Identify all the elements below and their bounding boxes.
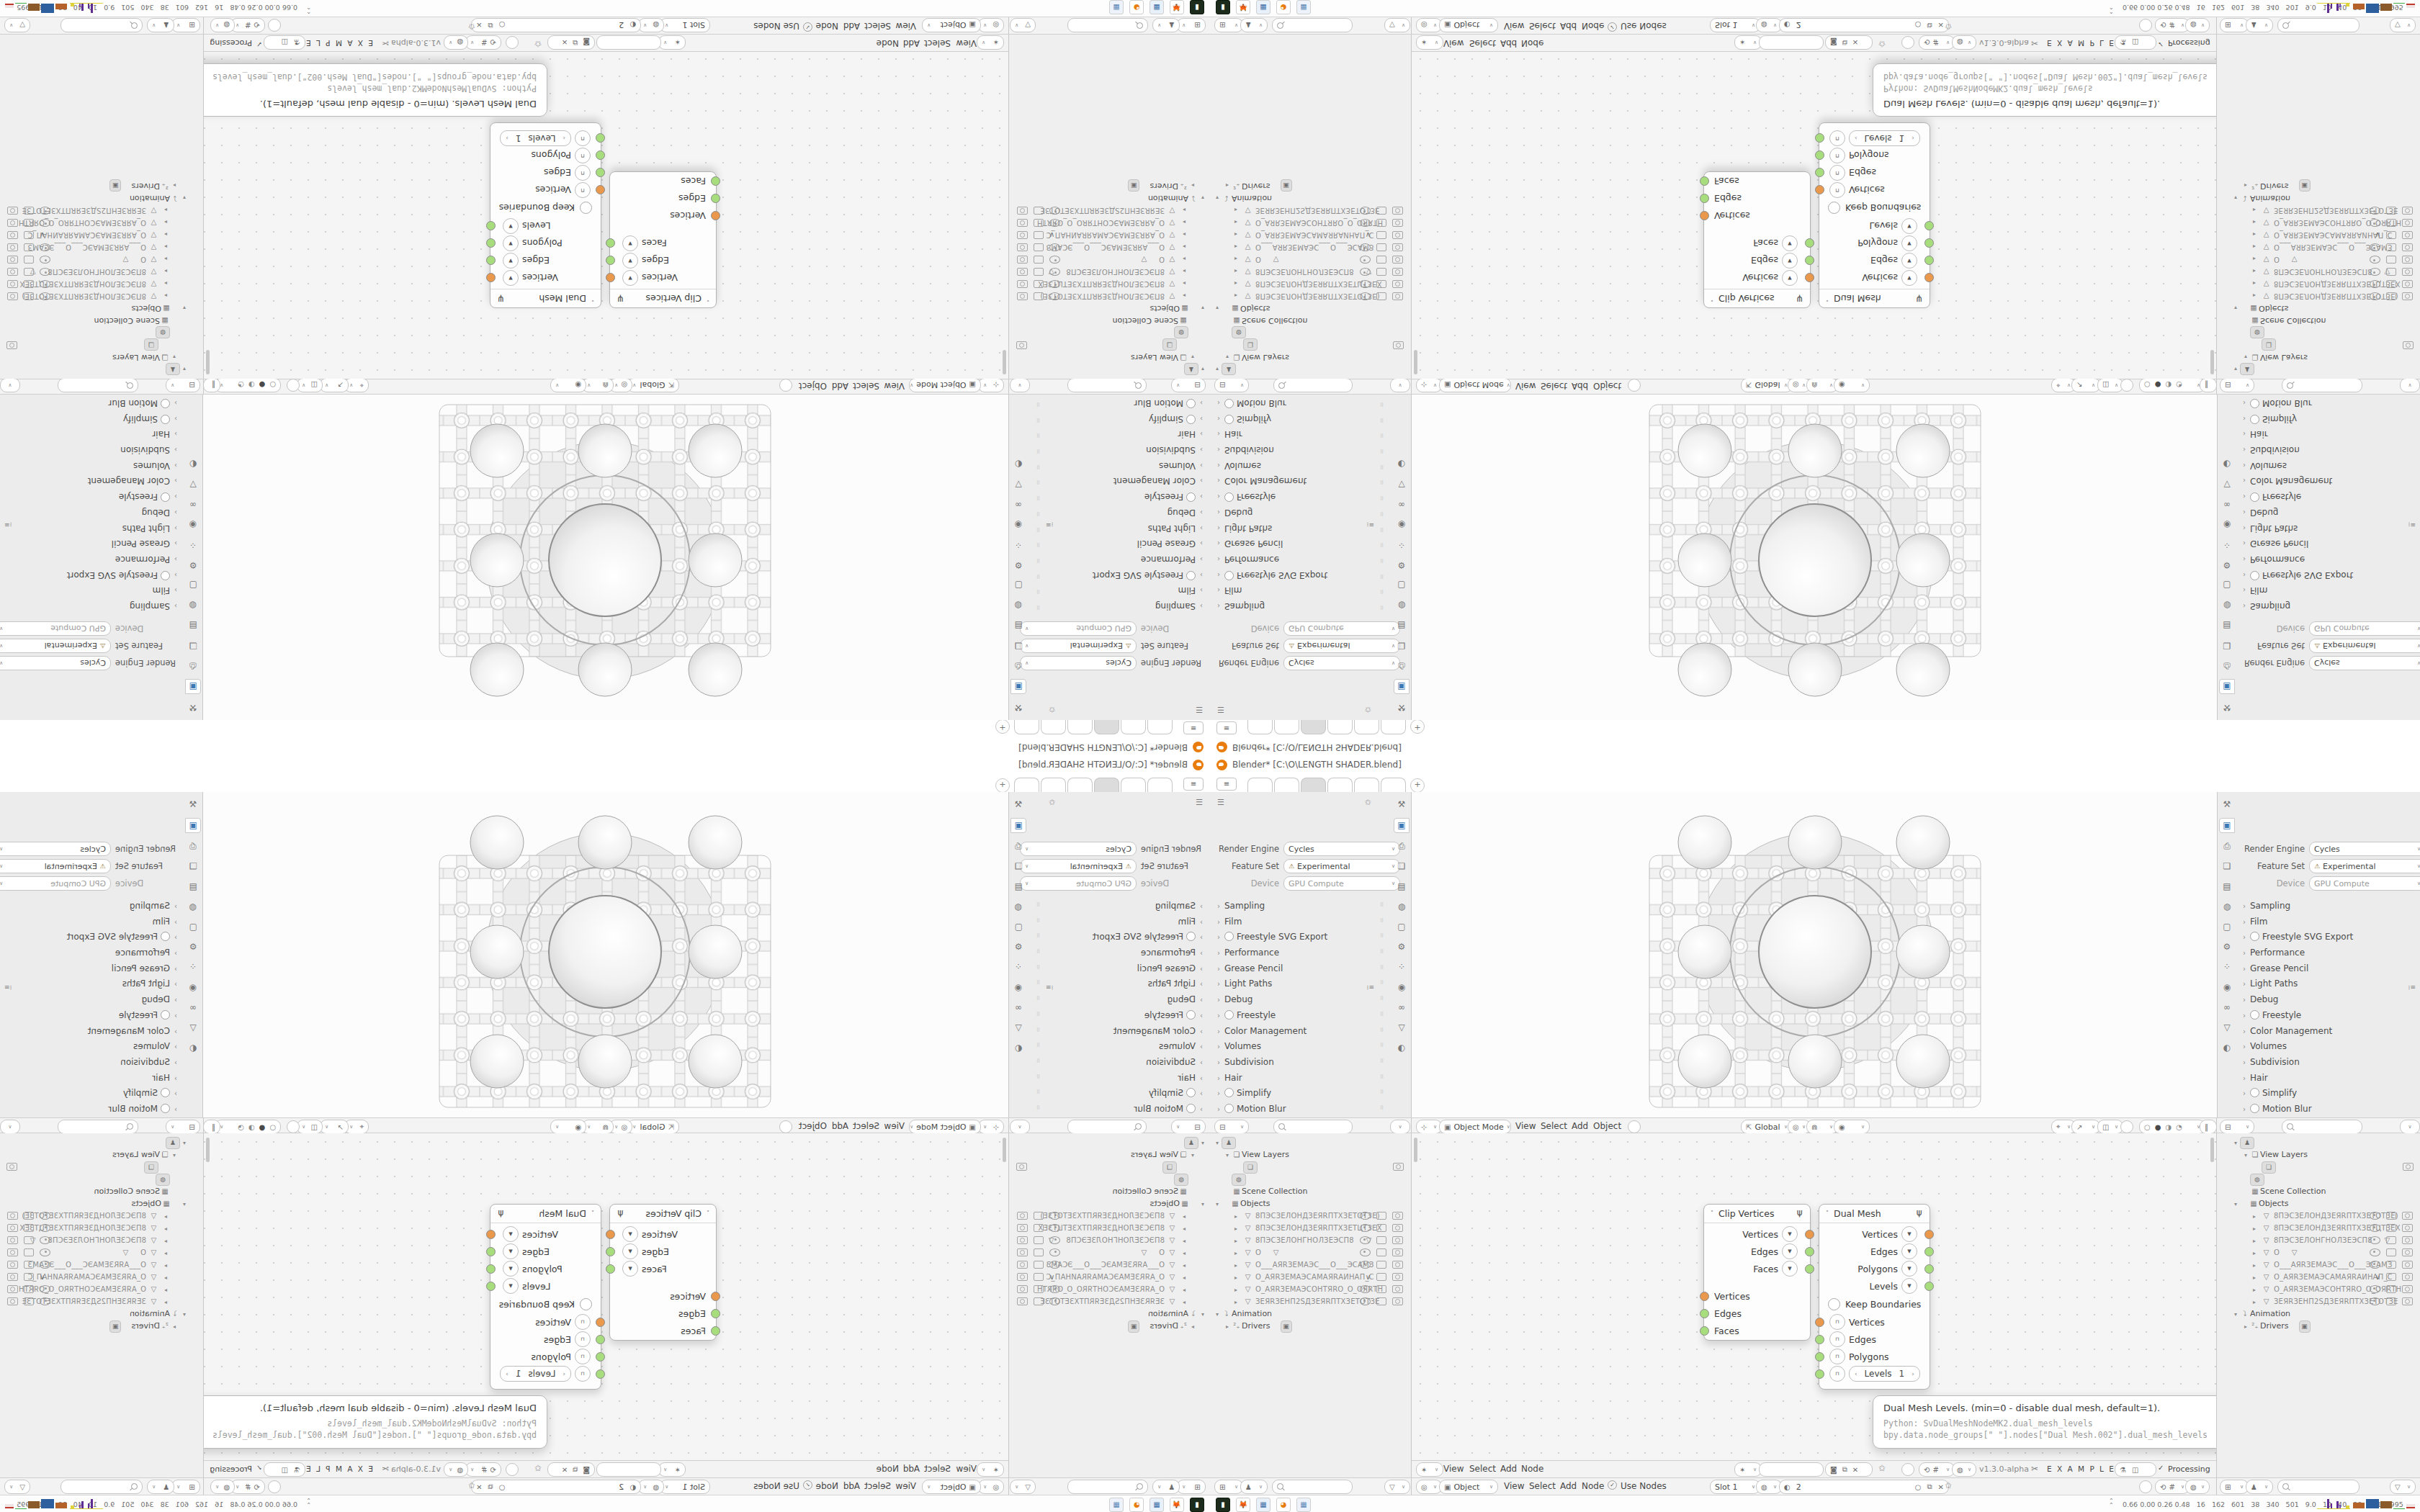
modifiers-icon[interactable]: ⚙ [1011, 940, 1026, 954]
disable-viewport-icon[interactable] [1034, 1273, 1044, 1281]
funnel-filter-button[interactable]: ▽∨ [2390, 1480, 2416, 1494]
property-section-row[interactable]: ›Film⁝≡⠿ [2236, 582, 2420, 598]
filter-owner-button[interactable]: ♟∨ [1152, 18, 1180, 32]
output-socket[interactable] [486, 1247, 496, 1256]
hide-eye-icon[interactable] [1049, 1248, 1060, 1256]
hide-eye-icon[interactable] [2370, 1224, 2380, 1232]
physics-icon[interactable]: ◉ [1394, 518, 1409, 531]
property-section-row[interactable]: ›Subdivision⁝≡⠿ [2236, 441, 2420, 457]
outliner-object-row[interactable]: ▸ ▽ 8ПЭСЗЕЛОНГНОЛЗЕЭСП8 ▽ ∨ [1213, 266, 1408, 278]
shading-mode-group[interactable]: ○ ● ◑ ◔ ∨ [2139, 378, 2205, 392]
firefox-icon[interactable]: 🦊 [1170, 0, 1184, 14]
property-section-row[interactable]: ›Film⁝≡⠿ [1027, 914, 1210, 930]
disable-viewport-icon[interactable] [24, 1297, 34, 1305]
outliner-object-row[interactable]: ▸ ▽ 8ПЭСЗЕЛОНГНОЛЗЕЭСП8 ▽ ∨ [2, 1234, 189, 1246]
outliner-object-row[interactable]: ▸ ▽ 8ПЭСЗЕЛОНГНОЛЗЕЭСП8 ▽ ∨ [2231, 1234, 2418, 1246]
node-output-socket-row[interactable]: Polygons▼ [490, 235, 601, 252]
workspace-tab[interactable] [1327, 778, 1353, 793]
disable-render-icon[interactable] [1017, 231, 1028, 239]
drag-grip-icon[interactable]: ⠿ [1380, 540, 1389, 546]
physics-icon[interactable]: ◉ [1011, 518, 1026, 531]
view-layer-icon[interactable]: ❏ [2220, 639, 2234, 652]
node-header[interactable]: ˅Dual Mesh⋔ [490, 1205, 601, 1223]
disable-viewport-icon[interactable] [1034, 292, 1044, 300]
output-socket[interactable] [1924, 1264, 1934, 1274]
material-slot-select[interactable]: Slot 1∨ [660, 1480, 710, 1494]
outliner-object-row[interactable]: ▸ ▽ 8ПЭСЗЕЛОНДЗЕЯRПТХЗЕТОТЗЕ) ▽ ∨ [1012, 290, 1207, 302]
menu-select[interactable]: Select [864, 1481, 891, 1491]
property-section-row[interactable]: ›Simplify⁝≡⠿ [2236, 410, 2420, 426]
property-section-row[interactable]: ›Hair⁝≡⠿ [0, 426, 184, 442]
outliner-object-row[interactable]: ▸ ▽ 8ПЭСЗЕЛОНДЗЕЯRПТХЗЕТЦТЗЕХ ▽ ∨ [2231, 1222, 2418, 1234]
menu-add[interactable]: Add [903, 38, 920, 48]
outliner-object-row[interactable]: ▸ ▽ O_АЯRЗЕМАЭСОНТЯRO_O_ОЯRТН ▽ ∨ [1213, 1283, 1408, 1295]
disable-render-icon[interactable] [7, 219, 18, 227]
menu-view[interactable]: View [896, 21, 916, 31]
hide-eye-icon[interactable] [2370, 280, 2380, 288]
section-toggle[interactable] [1224, 571, 1234, 580]
disable-viewport-icon[interactable] [24, 280, 34, 288]
outliner-object-row[interactable]: ▸ ▽ 8ПЭСЗЕЛОНДЗЕЯRПТХЗЕТЦТЗЕХ ▽ ∨ [1012, 1222, 1207, 1234]
property-section-row[interactable]: ›Debug⁝≡⠿ [1027, 504, 1210, 520]
hide-eye-icon[interactable] [1049, 1261, 1060, 1269]
render-icon[interactable]: ▣ [1010, 818, 1026, 833]
node-header[interactable]: ˅Dual Mesh⋔ [1819, 1205, 1930, 1223]
node-output-socket-row[interactable]: Levels▼ [490, 217, 601, 235]
filter-owner-button[interactable]: ♟∨ [2246, 18, 2273, 32]
outliner-display-mode-button[interactable]: ⊞∨ [171, 18, 200, 32]
node-input-socket-row[interactable]: ⊓Edges [1819, 164, 1930, 181]
section-toggle[interactable] [1224, 492, 1234, 502]
disable-render-icon[interactable] [2402, 207, 2413, 215]
tree-name-input[interactable] [1759, 1462, 1824, 1477]
node-output-socket-row[interactable]: Vertices▼ [1819, 269, 1930, 287]
dna-icon[interactable]: ✂ [2031, 1464, 2038, 1474]
menu-hamburger-icon[interactable]: ≡ [1183, 721, 1204, 734]
add-workspace-button[interactable]: + [995, 778, 1010, 793]
output-socket[interactable] [486, 1282, 496, 1291]
menu-select[interactable]: Select [924, 1464, 951, 1474]
solid-shading-icon[interactable]: ● [259, 382, 266, 390]
property-section-row[interactable]: ›Performance⁝≡⠿ [2236, 551, 2420, 567]
socket-menu-button[interactable]: ▼ [1901, 218, 1917, 234]
particles-icon[interactable]: ⁘ [1011, 538, 1026, 552]
view-layers-row[interactable]: ▾❏View Layers [1213, 351, 1408, 364]
wireframe-shading-icon[interactable]: ○ [269, 382, 276, 390]
terminal-icon[interactable]: ▮ [1190, 1498, 1204, 1512]
section-toggle[interactable] [1224, 932, 1234, 941]
node-output-socket-row[interactable]: Vertices▼ [610, 1225, 716, 1243]
render-engine-select[interactable]: Cycles∨ [2309, 842, 2420, 856]
disable-render-icon[interactable] [1392, 231, 1403, 239]
output-icon[interactable]: ⎙ [1394, 659, 1409, 672]
collapse-vee-icon[interactable]: ∨ [40, 229, 45, 241]
node-tree-type-button[interactable]: ✶∨ [977, 1462, 1004, 1477]
workspace-tab[interactable] [1274, 778, 1299, 793]
disable-viewport-icon[interactable] [1376, 231, 1386, 239]
collapse-icon[interactable]: ˅ [1711, 295, 1713, 302]
dna-icon[interactable]: ✂ [382, 38, 389, 48]
plug-button[interactable]: ⊓ [1829, 182, 1845, 198]
hide-eye-icon[interactable] [1360, 243, 1371, 251]
property-section-row[interactable]: ›Debug⁝≡⠿ [0, 504, 184, 520]
scene-icon[interactable]: ▤ [1394, 880, 1409, 894]
output-socket[interactable] [1805, 273, 1814, 282]
shield-icon[interactable]: ◙ [1830, 39, 1837, 47]
menu-select[interactable]: Select [1541, 381, 1567, 391]
world-icon[interactable]: ◍ [156, 326, 170, 338]
disable-viewport-icon[interactable] [2386, 243, 2396, 251]
physics-icon[interactable]: ◉ [186, 518, 200, 531]
examples-menu[interactable]: E X A M P L E S [2047, 39, 2125, 48]
tool-icon[interactable]: ⚒ [186, 701, 200, 714]
pin-icon[interactable]: ✩ [468, 1480, 475, 1490]
rendered-shading-icon[interactable]: ◔ [2176, 1123, 2182, 1131]
disable-viewport-icon[interactable] [1376, 256, 1386, 264]
node-dual-mesh[interactable]: ˅Dual Mesh⋔ Vertices▼ Edges▼ Polygons▼ L… [1819, 122, 1930, 308]
node-header[interactable]: ˅Clip Vertices⋔ [1704, 289, 1810, 307]
section-toggle[interactable] [1186, 399, 1196, 408]
disable-viewport-icon[interactable] [24, 219, 34, 227]
property-section-row[interactable]: ›Debug⁝≡⠿ [1210, 504, 1393, 520]
outliner-object-row[interactable]: ▸ ▽ O_АЯRЗЕМАЭСАМАЯRАИНАП_С ▽ ∨ [1012, 229, 1207, 241]
property-section-row[interactable]: ›Volumes⁝≡⠿ [2236, 457, 2420, 473]
drag-grip-icon[interactable]: ⠿ [1031, 525, 1040, 531]
object-icon[interactable]: ▢ [1394, 920, 1409, 934]
copies-icon[interactable]: ⧉ [1842, 1465, 1847, 1474]
property-section-row[interactable]: ›Color Management⁝≡⠿ [1027, 473, 1210, 489]
node-input-socket-row[interactable]: Edges [610, 1305, 716, 1322]
outliner-search-input[interactable] [58, 378, 138, 392]
node-clip-vertices[interactable]: ˅Clip Vertices⋔ Vertices▼ Edges▼ Faces▼ [609, 171, 717, 308]
drag-grip-icon[interactable]: ⠿ [1380, 493, 1389, 499]
property-section-row[interactable]: ›Simplify⁝≡⠿ [1210, 410, 1393, 426]
disable-render-icon[interactable] [1392, 1248, 1403, 1256]
snap-dropdown[interactable]: ⟲#∨ [230, 1480, 265, 1494]
hide-eye-icon[interactable] [1360, 207, 1371, 215]
hide-eye-icon[interactable] [1049, 207, 1060, 215]
workspace-tab[interactable] [1247, 778, 1273, 793]
shader-type-select[interactable]: ▣Object∨ [922, 1480, 981, 1494]
object-icon[interactable]: ▢ [1394, 578, 1409, 592]
output-socket[interactable] [1805, 256, 1814, 265]
plug-button[interactable]: ⊓ [575, 1366, 591, 1382]
annotate-toggle[interactable] [1628, 1120, 1641, 1133]
disable-viewport-icon[interactable] [2386, 1224, 2396, 1232]
property-section-row[interactable]: ›Simplify⁝≡⠿ [1210, 1086, 1393, 1102]
disable-viewport-icon[interactable] [24, 268, 34, 276]
material-icon-dropdown[interactable]: ◍∨ [1756, 1480, 1782, 1494]
tool-icon[interactable]: ⚒ [1394, 798, 1409, 811]
funnel-filter-button[interactable]: ▽∨ [1010, 18, 1036, 32]
drag-grip-icon[interactable]: ⠿ [1031, 950, 1040, 956]
outliner-object-row[interactable]: ▸ ▽ 8ПЭСЗЕЛОНГНОЛЗЕЭСП8 ▽ ∨ [1012, 1234, 1207, 1246]
sv-extra-group[interactable]: ⚗◫ [264, 35, 305, 50]
tool-icon[interactable]: ⚒ [1394, 701, 1409, 714]
drag-grip-icon[interactable]: ⠿ [1031, 935, 1040, 940]
menu-select[interactable]: Select [924, 38, 951, 48]
drag-grip-icon[interactable]: ⠿ [1380, 904, 1389, 909]
property-section-row[interactable]: ›Performance⁝≡⠿ [1027, 945, 1210, 961]
scene-icon[interactable]: ▤ [186, 880, 200, 894]
hide-eye-icon[interactable] [2370, 243, 2380, 251]
menu-hamburger-icon[interactable]: ≡ [1216, 721, 1237, 734]
feature-set-select[interactable]: ⚠Experimental∨ [1020, 639, 1137, 653]
input-socket[interactable] [596, 1318, 605, 1327]
drag-grip-icon[interactable]: ⠿ [1031, 1076, 1040, 1081]
disable-render-icon[interactable] [7, 1285, 18, 1293]
tree-protect-group[interactable]: ◙⧉✕ [1825, 35, 1873, 50]
collapse-icon[interactable]: ˅ [1826, 1210, 1829, 1217]
property-section-row[interactable]: ›Volumes⁝≡⠿ [1027, 457, 1210, 473]
disable-viewport-icon[interactable] [1376, 219, 1386, 227]
property-section-row[interactable]: ›Color Management⁝≡⠿ [2236, 473, 2420, 489]
workspace-tab[interactable] [1381, 778, 1406, 793]
constraints-icon[interactable]: ∞ [1011, 498, 1026, 511]
input-socket[interactable] [1815, 150, 1824, 160]
animation-row[interactable]: ▾⤵Animation [1213, 192, 1408, 204]
world-icon[interactable]: ◍ [1232, 1174, 1246, 1186]
disable-viewport-icon[interactable] [24, 1224, 34, 1232]
menu-select[interactable]: Select [1541, 1121, 1567, 1131]
hide-eye-icon[interactable] [1360, 256, 1371, 264]
xray-toggle[interactable]: ◫∨ [297, 1120, 323, 1134]
drag-grip-icon[interactable]: ⠿ [1380, 478, 1389, 484]
node-tree-icon-button[interactable]: ✶∨ [658, 1462, 686, 1477]
keep-boundaries-row[interactable]: Keep Boundaries [490, 1295, 601, 1313]
shader-type-select[interactable]: ▣Object∨ [1439, 1480, 1498, 1494]
disable-viewport-icon[interactable] [1376, 1212, 1386, 1220]
disable-render-icon[interactable] [2402, 1285, 2413, 1293]
funnel-filter-button[interactable]: ▽∨ [4, 1480, 30, 1494]
feature-set-select[interactable]: ⚠Experimental∨ [1020, 859, 1137, 873]
outliner-object-row[interactable]: ▸ ▽ 8ПЭСЗЕЛОНДЗЕЯRПТХЗЕТЦТЗЕХ ▽ ∨ [2, 278, 189, 290]
property-section-row[interactable]: ›Grease Pencil⁝≡⠿ [0, 961, 184, 977]
object-icon[interactable]: ▢ [186, 920, 200, 934]
workspace-tab-active[interactable] [1301, 778, 1326, 793]
property-section-row[interactable]: ›Freestyle⁝≡⠿ [1210, 489, 1393, 505]
viewport-editor-type-button[interactable]: ⊹∨ [978, 378, 1004, 392]
hide-eye-icon[interactable] [40, 256, 50, 264]
world-row[interactable]: ◍ [2, 1173, 189, 1185]
section-toggle[interactable] [2250, 1010, 2259, 1020]
proportional-edit-dropdown[interactable]: ◉∨ [550, 378, 586, 392]
pin-icon[interactable]: ✩ [1945, 22, 1952, 32]
render-engine-select[interactable]: Cycles∨ [2309, 656, 2420, 670]
plug-button[interactable]: ⊓ [575, 165, 591, 181]
scene-collection-row[interactable]: ▦Scene Collection [1213, 1185, 1408, 1197]
calculator2-icon[interactable]: ▦ [1109, 0, 1124, 14]
property-section-row[interactable]: ›Color Management⁝≡⠿ [1210, 1024, 1393, 1040]
menu-add[interactable]: Add [1560, 21, 1577, 31]
property-section-row[interactable]: ›Hair⁝≡⠿ [1210, 426, 1393, 442]
menu-node[interactable]: Node [1521, 1464, 1543, 1474]
overlay-dropdown[interactable]: ◍∨ [444, 1462, 468, 1477]
node-tree-icon-button[interactable]: ✶∨ [1734, 1462, 1762, 1477]
orientation-select[interactable]: ⇱Global∨ [1741, 1120, 1793, 1134]
disable-render-icon[interactable] [1392, 1236, 1403, 1244]
drivers-row[interactable]: ▸²₊Drivers▣ [2, 1320, 189, 1332]
unlink-icon[interactable]: ✕ [562, 1466, 568, 1474]
outliner-object-row[interactable]: ▸ ▽ O___АЯRЗЕМАЭС___O___ЭСАМЗ ▽ ∨ [2231, 241, 2418, 253]
outliner-type-button[interactable]: ⊟∨ [166, 1120, 200, 1134]
drag-grip-icon[interactable]: ⠿ [1031, 400, 1040, 405]
disable-viewport-icon[interactable] [24, 1236, 34, 1244]
drag-grip-icon[interactable]: ⠿ [1031, 1060, 1040, 1066]
drag-grip-icon[interactable]: ⠿ [1031, 981, 1040, 987]
hide-eye-icon[interactable] [40, 219, 50, 227]
outliner-object-row[interactable]: ▸ ▽ ЗЕЯRЗЕНП2SДЗЕЯRПТХЗЕТОТЗЕ ▽ ∨ [1213, 1295, 1408, 1308]
outliner-search-input[interactable] [1273, 378, 1353, 392]
camera-icon[interactable] [1016, 341, 1027, 349]
workspace-tab[interactable] [1014, 778, 1039, 793]
disable-render-icon[interactable] [2402, 280, 2413, 288]
feature-set-select[interactable]: ⚠Experimental∨ [0, 639, 111, 653]
calculator2-icon[interactable]: ▦ [1109, 1498, 1124, 1512]
disable-render-icon[interactable] [1017, 280, 1028, 288]
node-input-socket-row[interactable]: Vertices [610, 207, 716, 225]
outliner-search-input[interactable] [58, 1120, 138, 1134]
property-section-row[interactable]: ›Light Paths⁝≡⠿ [0, 520, 184, 536]
node-output-socket-row[interactable]: Polygons▼ [1819, 1260, 1930, 1277]
workspace-tab[interactable] [1381, 719, 1406, 734]
hide-eye-icon[interactable] [1360, 219, 1371, 227]
menu-node[interactable]: Node [1582, 21, 1604, 31]
outliner-object-row[interactable]: ▸ ▽ O_АЯRЗЕМАЭСАМАЯRАИНАП_С ▽ ∨ [1012, 1271, 1207, 1283]
pin-icon[interactable]: ✩ [1878, 1463, 1886, 1473]
property-section-row[interactable]: ›Freestyle⁝≡⠿ [2236, 1008, 2420, 1024]
flask-icon[interactable]: ⚗ [2120, 39, 2126, 47]
physics-icon[interactable]: ◉ [2220, 518, 2234, 531]
hide-eye-icon[interactable] [2370, 1261, 2380, 1269]
node-dual-mesh[interactable]: ˅Dual Mesh⋔ Vertices▼ Edges▼ Polygons▼ L… [1819, 1204, 1930, 1390]
blend-mode-icon[interactable]: ♟ [166, 363, 180, 375]
menu-select[interactable]: Select [1529, 1481, 1556, 1491]
disable-render-icon[interactable] [2402, 219, 2413, 227]
input-socket[interactable] [1815, 133, 1824, 143]
drag-grip-icon[interactable]: ⠿ [1380, 935, 1389, 940]
outliner-object-row[interactable]: ▸ ▽ ЗЕЯRЗЕНП2SДЗЕЯRПТХЗЕТОТЗЕ ▽ ∨ [2, 1295, 189, 1308]
disable-render-icon[interactable] [1017, 1261, 1028, 1269]
hide-eye-icon[interactable] [1360, 1236, 1371, 1244]
pause-button[interactable]: ‖ [2200, 1120, 2217, 1134]
hide-eye-icon[interactable] [1049, 1224, 1060, 1232]
property-section-row[interactable]: ›Freestyle SVG Export⁝≡⠿ [0, 930, 184, 945]
pin-icon[interactable]: ✩ [1945, 1480, 1952, 1490]
node-header[interactable]: ˅Dual Mesh⋔ [1819, 289, 1930, 307]
modifiers-icon[interactable]: ⚙ [2220, 558, 2234, 572]
view-layer-item-row[interactable]: ❏ [2, 1161, 189, 1173]
property-section-row[interactable]: ›Volumes⁝≡⠿ [2236, 1039, 2420, 1055]
disable-render-icon[interactable] [1017, 268, 1028, 276]
pin-icon[interactable]: ✩ [1049, 798, 1055, 807]
output-socket[interactable] [606, 256, 615, 265]
property-section-row[interactable]: ›Freestyle⁝≡⠿ [2236, 489, 2420, 505]
menu-add[interactable]: Add [1500, 38, 1517, 48]
node-input-socket-row[interactable]: ⊓Edges [490, 164, 601, 181]
drag-grip-icon[interactable]: ⠿ [1380, 1029, 1389, 1035]
blend-mode-icon[interactable]: ♟ [1222, 1137, 1236, 1149]
shading-extra-toggle[interactable] [2120, 1120, 2133, 1133]
world-icon[interactable]: ◍ [1394, 900, 1409, 914]
unlink-icon[interactable]: ✕ [1938, 1483, 1944, 1491]
plug-button[interactable]: ⊓ [575, 1314, 591, 1330]
hide-eye-icon[interactable] [1360, 1297, 1371, 1305]
world-icon[interactable]: ◍ [2250, 1174, 2264, 1186]
section-toggle[interactable] [1186, 571, 1196, 580]
wireframe-shading-icon[interactable]: ○ [2144, 1123, 2151, 1131]
hide-eye-icon[interactable] [1049, 219, 1060, 227]
hide-eye-icon[interactable] [1360, 1248, 1371, 1256]
copies-icon[interactable]: ⧉ [573, 38, 578, 47]
hide-eye-icon[interactable] [1360, 1212, 1371, 1220]
view-layer-icon[interactable]: ❏ [144, 338, 158, 351]
collapse-icon[interactable]: ˅ [1711, 1210, 1713, 1217]
object-icon[interactable]: ▢ [1011, 578, 1026, 592]
outliner-object-row[interactable]: ▸ ▽ 8ПЭСЗЕЛОНДЗЕЯRПТХЗЕТЦТЗЕХ ▽ ∨ [1213, 278, 1408, 290]
disable-render-icon[interactable] [2402, 1261, 2413, 1269]
property-section-row[interactable]: ›Hair⁝≡⠿ [1027, 426, 1210, 442]
disable-viewport-icon[interactable] [2386, 1297, 2396, 1305]
firefox-icon[interactable]: 🦊 [1236, 0, 1250, 14]
node-output-socket-row[interactable]: Vertices▼ [490, 1225, 601, 1243]
property-section-row[interactable]: ›Freestyle SVG Export⁝≡⠿ [2236, 567, 2420, 582]
tree-toggle[interactable] [506, 1463, 519, 1476]
socket-menu-button[interactable]: ▼ [1901, 1226, 1917, 1242]
property-section-row[interactable]: ›Grease Pencil⁝≡⠿ [1210, 536, 1393, 552]
menu-select[interactable]: Select [853, 381, 879, 391]
firefox-icon[interactable]: 🦊 [1236, 1498, 1250, 1512]
output-icon[interactable]: ⎙ [2220, 659, 2234, 672]
panel-icon[interactable]: ◫ [2132, 39, 2138, 47]
object-data-icon[interactable]: ▽ [186, 1021, 200, 1035]
disable-render-icon[interactable] [7, 256, 18, 264]
drag-grip-icon[interactable]: ⠿ [1380, 446, 1389, 452]
tree-name-input[interactable] [596, 35, 661, 50]
menu-add[interactable]: Add [843, 21, 860, 31]
scrollbar[interactable] [2210, 350, 2214, 374]
world-icon[interactable]: ◍ [2250, 326, 2264, 338]
hide-eye-icon[interactable] [40, 1224, 50, 1232]
mode-select[interactable]: ▣Object Mode∨ [1439, 378, 1511, 392]
property-section-row[interactable]: ›Performance⁝≡⠿ [0, 551, 184, 567]
scene-icon[interactable]: ▤ [1394, 618, 1409, 632]
constraints-icon[interactable]: ∞ [1394, 1001, 1409, 1014]
drag-grip-icon[interactable]: ⠿ [1031, 478, 1040, 484]
animation-row[interactable]: ▾⤵Animation [2, 1308, 189, 1320]
disable-viewport-icon[interactable] [1376, 280, 1386, 288]
property-section-row[interactable]: ›Debug⁝≡⠿ [1210, 992, 1393, 1008]
outliner-object-row[interactable]: ▸ ▽ O ▽ ∨ [1213, 253, 1408, 266]
drag-grip-icon[interactable]: ⠿ [1031, 462, 1040, 468]
output-socket[interactable] [606, 238, 615, 248]
socket-menu-button[interactable]: ▼ [622, 1261, 638, 1277]
hide-eye-icon[interactable] [1049, 292, 1060, 300]
property-section-row[interactable]: ›Hair⁝≡⠿ [1210, 1071, 1393, 1086]
property-section-row[interactable]: ›Sampling⁝≡⠿ [1210, 598, 1393, 613]
disable-render-icon[interactable] [7, 1236, 18, 1244]
outliner-object-row[interactable]: ▸ ▽ O___АЯRЗЕМАЭС___O___ЭСАМЗ ▽ ∨ [2, 241, 189, 253]
unlink-icon[interactable]: ✕ [1938, 22, 1944, 30]
property-section-row[interactable]: ›Subdivision⁝≡⠿ [1210, 1055, 1393, 1071]
node-dual-mesh[interactable]: ˅Dual Mesh⋔ Vertices▼ Edges▼ Polygons▼ L… [490, 1204, 601, 1390]
physics-icon[interactable]: ◉ [1394, 981, 1409, 994]
socket-menu-button[interactable]: ▼ [1782, 1243, 1798, 1259]
world-icon[interactable]: ◍ [1011, 598, 1026, 612]
node-header[interactable]: ˅Clip Vertices⋔ [610, 289, 716, 307]
viewport-editor-type-button[interactable]: ⊹∨ [1416, 378, 1442, 392]
section-toggle[interactable] [161, 1088, 170, 1097]
